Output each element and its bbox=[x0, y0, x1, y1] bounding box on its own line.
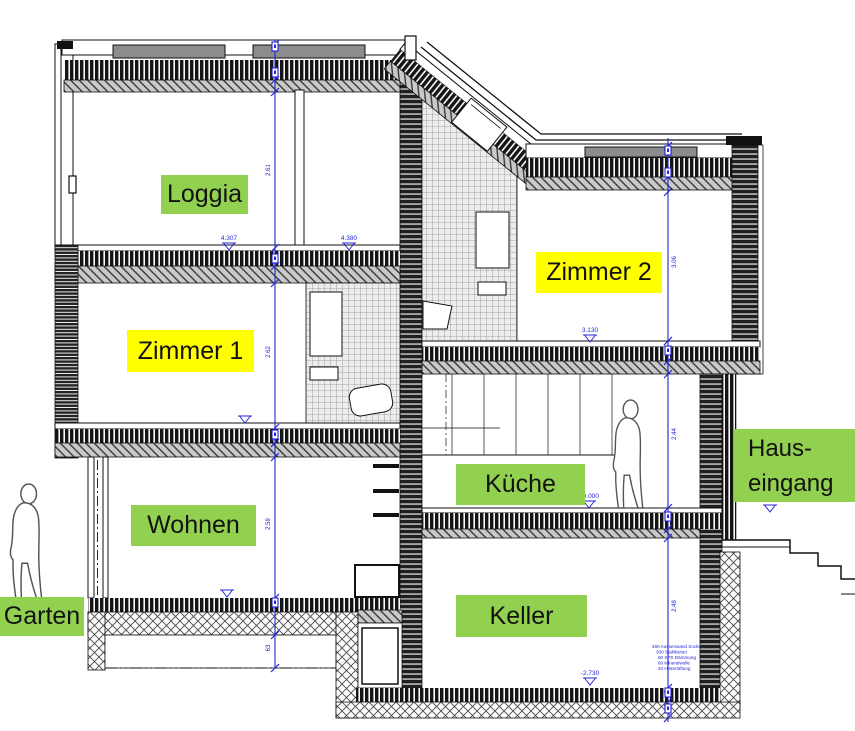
svg-text:60 Mineralwolle: 60 Mineralwolle bbox=[658, 661, 690, 666]
label-loggia: Loggia bbox=[161, 175, 248, 214]
green-roof-layer bbox=[64, 60, 410, 80]
dim-text-kueche-height: 2.44 bbox=[672, 428, 678, 440]
zimmer2-floor-slab bbox=[422, 341, 760, 374]
roof-flat-right bbox=[526, 136, 762, 190]
middle-wall bbox=[400, 74, 422, 600]
keller-floor-slab bbox=[336, 688, 740, 718]
dimension-line-right bbox=[664, 138, 672, 722]
green-roof-layer bbox=[526, 158, 742, 177]
svg-text:4.307: 4.307 bbox=[221, 235, 238, 242]
kitchen-wall-lines bbox=[422, 374, 614, 455]
kitchen-floor-slab bbox=[422, 508, 722, 538]
label-zimmer2: Zimmer 2 bbox=[536, 252, 662, 293]
section-drawing-canvas: 2.61 2.62 2.59 63 3.06 2.44 2.48 4.307 bbox=[0, 0, 855, 731]
label-hauseingang-line2: eingang bbox=[748, 466, 833, 501]
niche-opening bbox=[310, 367, 338, 380]
ridge-post bbox=[405, 36, 416, 60]
zimmer1-tiled-wall bbox=[306, 283, 400, 423]
person-figure-kitchen bbox=[613, 400, 642, 508]
wohnen-glazing bbox=[88, 457, 108, 598]
parapet-cap-left bbox=[57, 41, 73, 49]
dim-text-wohnen-height: 2.59 bbox=[266, 518, 272, 530]
rooflight-panel bbox=[113, 45, 225, 58]
dim-text-zimmer1-height: 2.62 bbox=[266, 346, 272, 358]
dim-text-foundation: 63 bbox=[266, 644, 272, 651]
svg-text:4.380: 4.380 bbox=[341, 235, 358, 242]
dim-text-keller-height: 2.48 bbox=[672, 600, 678, 612]
parapet-cap-right bbox=[726, 136, 762, 145]
level-marker-keller: -2.730 bbox=[581, 670, 600, 685]
wall-buildup-legend: 480 Aussenwand Sockel 300 Stahlbeton 60 … bbox=[652, 644, 702, 671]
niche-opening bbox=[478, 282, 506, 295]
level-marker-zimmer2: 3.130 bbox=[582, 327, 599, 342]
label-garten: Garten bbox=[0, 597, 84, 636]
label-wohnen: Wohnen bbox=[131, 505, 256, 546]
perimeter-insulation bbox=[720, 552, 740, 710]
dimension-line-left bbox=[271, 40, 279, 672]
svg-text:60 XPS Dämmung: 60 XPS Dämmung bbox=[658, 655, 696, 660]
label-kueche: Küche bbox=[456, 464, 585, 505]
door-handle-detail bbox=[69, 176, 76, 193]
cellar-window bbox=[362, 628, 398, 684]
zimmer2-right-wall bbox=[732, 145, 763, 374]
svg-text:20 Hinterlüftung: 20 Hinterlüftung bbox=[658, 666, 691, 671]
dim-text-loggia-height: 2.61 bbox=[266, 164, 272, 176]
svg-text:-2.730: -2.730 bbox=[581, 670, 600, 677]
label-hauseingang-line1: Haus- bbox=[748, 431, 812, 466]
label-hauseingang: Haus- eingang bbox=[734, 429, 855, 502]
roof-slab bbox=[526, 177, 742, 190]
door-opening bbox=[476, 212, 509, 268]
wohnen-shelves bbox=[355, 464, 399, 597]
zimmer1-floor-slab bbox=[55, 423, 400, 457]
svg-text:3.130: 3.130 bbox=[582, 327, 599, 334]
bathtub-outline bbox=[423, 301, 452, 329]
dim-text-zimmer2-height: 3.06 bbox=[672, 256, 678, 268]
middle-wall-basement bbox=[400, 600, 422, 688]
level-marker-wohnen bbox=[220, 590, 234, 597]
level-marker-zimmer1 bbox=[238, 416, 252, 423]
roof-flat-left bbox=[57, 40, 410, 92]
label-zimmer1: Zimmer 1 bbox=[127, 330, 254, 372]
rooflight-panel bbox=[253, 45, 365, 58]
roof-slab bbox=[64, 80, 410, 92]
rooflight-panel bbox=[585, 147, 697, 157]
cabinet-outline bbox=[355, 565, 399, 597]
svg-text:480 Aussenwand Sockel: 480 Aussenwand Sockel bbox=[652, 644, 702, 649]
svg-text:300 Stahlbeton: 300 Stahlbeton bbox=[656, 650, 687, 655]
door-opening bbox=[310, 292, 342, 356]
entrance-stairs bbox=[722, 540, 855, 594]
person-figure-garden bbox=[11, 484, 42, 598]
loggia-partition-wall bbox=[295, 90, 304, 245]
label-keller: Keller bbox=[456, 595, 587, 637]
loggia-floor-slab bbox=[55, 245, 400, 283]
